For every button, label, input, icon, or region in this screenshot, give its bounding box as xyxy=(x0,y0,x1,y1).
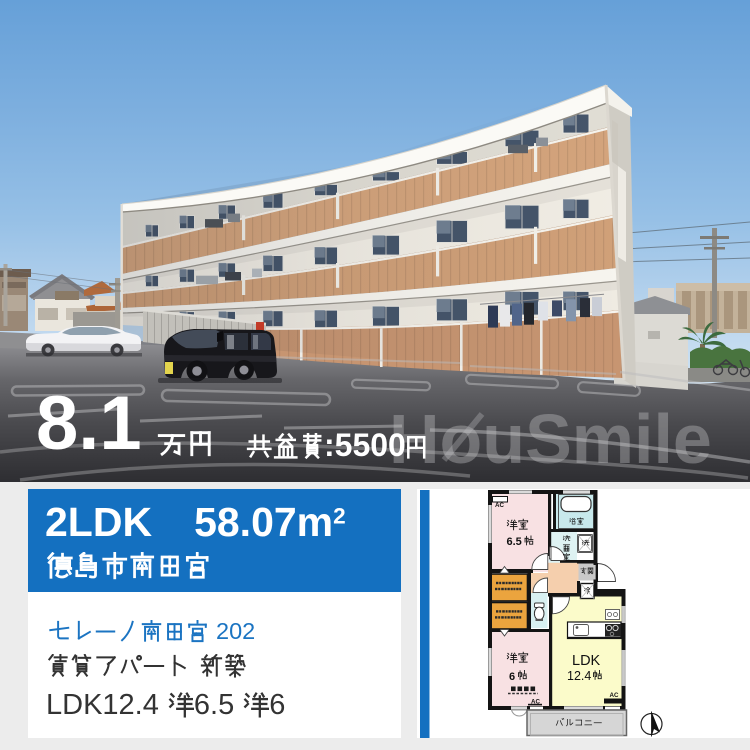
svg-text:AC: AC xyxy=(610,692,619,699)
svg-text:LDK: LDK xyxy=(572,653,601,669)
svg-text:12.4: 12.4 xyxy=(567,669,591,683)
svg-text:6: 6 xyxy=(509,671,515,683)
svg-text:HouSmile: HouSmile xyxy=(389,400,712,478)
svg-text:AC: AC xyxy=(495,502,504,509)
svg-text:6.5: 6.5 xyxy=(507,536,522,548)
